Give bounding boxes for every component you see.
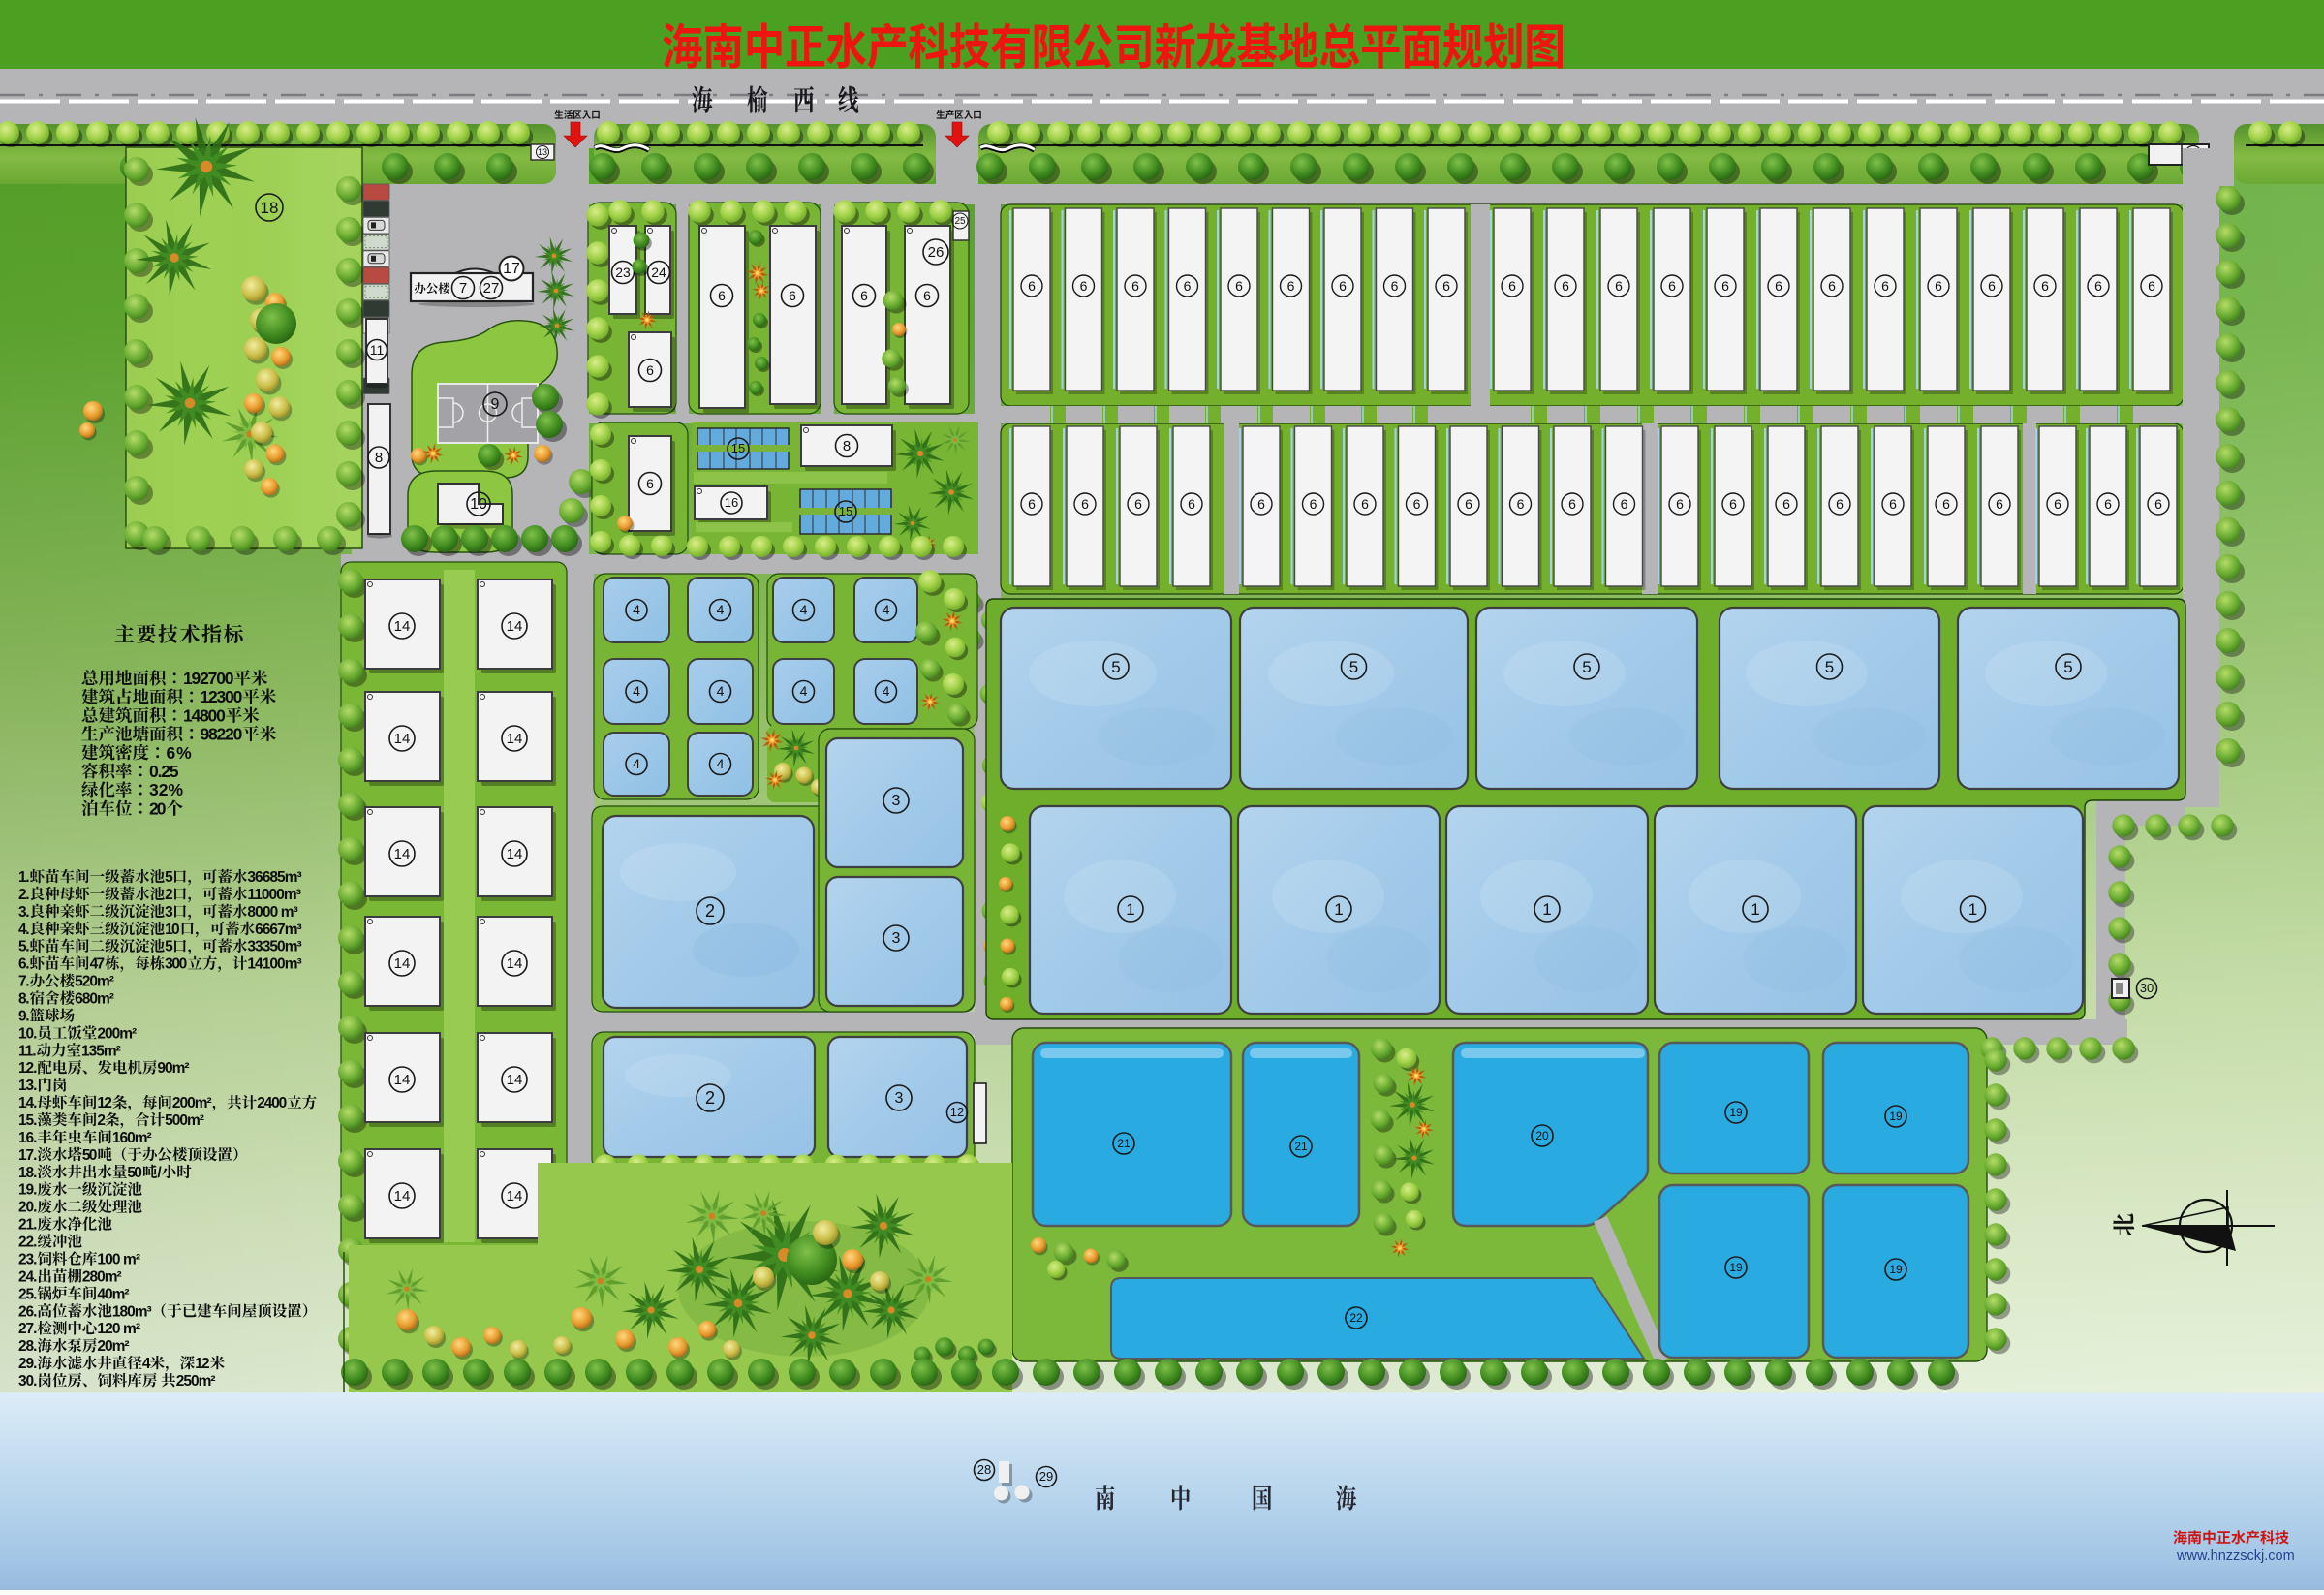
svg-text:15.: 15. <box>18 1112 37 1129</box>
svg-text:6: 6 <box>1287 278 1295 294</box>
svg-text:3: 3 <box>892 930 901 947</box>
svg-text:4: 4 <box>883 602 890 617</box>
svg-text:14: 14 <box>507 731 523 747</box>
svg-text:21: 21 <box>1117 1137 1131 1150</box>
svg-text:36685m³: 36685m³ <box>247 869 301 886</box>
svg-text:6: 6 <box>1615 278 1623 294</box>
svg-text:23: 23 <box>615 265 631 280</box>
svg-text:4: 4 <box>800 602 808 617</box>
svg-text:6: 6 <box>1517 496 1525 512</box>
svg-text:6: 6 <box>1080 278 1088 294</box>
svg-text:6: 6 <box>2041 278 2049 294</box>
svg-text:300: 300 <box>165 956 187 973</box>
svg-text:25: 25 <box>954 216 966 227</box>
svg-text:6: 6 <box>1134 496 1142 512</box>
svg-text:6: 6 <box>1131 278 1139 294</box>
svg-text:6: 6 <box>1881 278 1889 294</box>
svg-text:14: 14 <box>394 1072 411 1088</box>
svg-text:18: 18 <box>261 199 279 217</box>
svg-text:200m²: 200m² <box>97 1025 137 1042</box>
svg-text:40m²: 40m² <box>97 1286 129 1302</box>
svg-text:90m²: 90m² <box>157 1060 189 1077</box>
svg-text:2.: 2. <box>18 887 30 903</box>
svg-text:6: 6 <box>2148 278 2155 294</box>
svg-text:8000 m³: 8000 m³ <box>247 904 297 921</box>
svg-text:5.: 5. <box>18 939 30 955</box>
svg-text:3: 3 <box>895 1090 904 1107</box>
svg-text:4: 4 <box>800 683 808 699</box>
svg-text:192700: 192700 <box>183 669 234 688</box>
svg-text:6: 6 <box>1568 496 1576 512</box>
svg-text:20m²: 20m² <box>97 1338 129 1355</box>
svg-text:3: 3 <box>892 793 901 809</box>
svg-text:180m³: 180m³ <box>112 1303 152 1320</box>
svg-text:19.: 19. <box>18 1182 37 1199</box>
svg-text:5: 5 <box>165 869 173 886</box>
svg-text:6: 6 <box>1996 496 2003 512</box>
svg-text:50: 50 <box>127 1165 142 1181</box>
svg-text:10.: 10. <box>18 1025 37 1042</box>
svg-text:4: 4 <box>717 602 725 617</box>
svg-text:14800: 14800 <box>183 705 226 725</box>
svg-text:15: 15 <box>731 441 745 455</box>
svg-text:14: 14 <box>394 618 411 635</box>
svg-text:11: 11 <box>370 342 385 358</box>
svg-text:6: 6 <box>1391 278 1399 294</box>
svg-text:10: 10 <box>470 496 487 513</box>
svg-text:4: 4 <box>633 756 640 771</box>
svg-text:4: 4 <box>717 756 725 771</box>
svg-text:14: 14 <box>507 846 523 862</box>
svg-text:500m²: 500m² <box>165 1112 204 1129</box>
svg-text:13: 13 <box>538 147 547 157</box>
svg-text:6: 6 <box>1413 496 1421 512</box>
svg-text:19: 19 <box>1729 1106 1743 1119</box>
svg-text:14: 14 <box>507 1072 523 1088</box>
svg-text:18.: 18. <box>18 1165 37 1181</box>
svg-text:6: 6 <box>1081 496 1089 512</box>
svg-text:200m²: 200m² <box>172 1095 212 1111</box>
svg-text:6: 6 <box>1339 278 1347 294</box>
svg-text:6: 6 <box>1721 278 1729 294</box>
svg-text:6: 6 <box>2094 278 2102 294</box>
svg-text:7.: 7. <box>18 974 30 990</box>
svg-text:/: / <box>157 1165 162 1181</box>
svg-text:8: 8 <box>843 438 851 454</box>
svg-text:6.: 6. <box>18 956 30 973</box>
svg-text:6: 6 <box>2054 496 2061 512</box>
svg-text:6: 6 <box>1729 496 1737 512</box>
svg-text:6: 6 <box>1465 496 1472 512</box>
svg-text:1: 1 <box>1126 900 1134 919</box>
svg-text:4: 4 <box>717 683 725 699</box>
svg-text:2: 2 <box>705 1088 715 1108</box>
svg-text:98220: 98220 <box>201 725 243 744</box>
svg-text:14: 14 <box>507 1188 523 1204</box>
svg-text:6: 6 <box>1935 278 1942 294</box>
svg-text:20.: 20. <box>18 1200 37 1216</box>
svg-text:22: 22 <box>1349 1311 1363 1325</box>
svg-text:6: 6 <box>1621 496 1628 512</box>
svg-text:5: 5 <box>1825 658 1834 676</box>
svg-text:6: 6 <box>1184 278 1192 294</box>
svg-text:27: 27 <box>483 280 500 297</box>
svg-text:2: 2 <box>165 887 173 903</box>
svg-text:14100m³: 14100m³ <box>247 956 301 973</box>
svg-text:6: 6 <box>1310 496 1317 512</box>
svg-text:6: 6 <box>1942 496 1950 512</box>
svg-text:28.: 28. <box>18 1338 37 1355</box>
svg-text:520m²: 520m² <box>75 974 114 990</box>
svg-text:5: 5 <box>165 939 173 955</box>
svg-text:32%: 32% <box>149 780 183 799</box>
svg-text:14.: 14. <box>18 1095 37 1111</box>
svg-text:12300: 12300 <box>201 687 243 706</box>
svg-text:6: 6 <box>1782 496 1790 512</box>
svg-text:6: 6 <box>1889 496 1897 512</box>
svg-text:1: 1 <box>1751 900 1759 919</box>
svg-text:6: 6 <box>860 288 868 303</box>
svg-text:20: 20 <box>1535 1129 1549 1142</box>
svg-text:6: 6 <box>1188 496 1195 512</box>
svg-text:24: 24 <box>651 265 666 280</box>
svg-text:8: 8 <box>375 450 383 466</box>
svg-text:14: 14 <box>394 1188 411 1204</box>
svg-text:21.: 21. <box>18 1217 37 1234</box>
svg-text:www.hnzzsckj.com: www.hnzzsckj.com <box>2176 1548 2295 1564</box>
svg-text:6: 6 <box>646 362 654 378</box>
svg-text:680m²: 680m² <box>75 991 114 1008</box>
svg-text:5: 5 <box>1349 658 1358 676</box>
svg-text:12.: 12. <box>18 1060 37 1077</box>
svg-text:12: 12 <box>97 1095 112 1111</box>
svg-text:26.: 26. <box>18 1303 37 1320</box>
svg-text:4: 4 <box>142 1356 151 1372</box>
svg-text:21: 21 <box>1294 1140 1308 1153</box>
svg-text:5: 5 <box>2063 658 2072 676</box>
svg-text:7: 7 <box>459 280 467 297</box>
svg-text:20: 20 <box>149 798 167 818</box>
svg-text:17.: 17. <box>18 1147 37 1164</box>
svg-text:12: 12 <box>195 1356 210 1372</box>
svg-text:6: 6 <box>2154 496 2162 512</box>
svg-text:19: 19 <box>1889 1263 1903 1276</box>
svg-text:17: 17 <box>503 261 520 277</box>
svg-text:47: 47 <box>90 956 106 973</box>
svg-text:30: 30 <box>2140 981 2154 995</box>
svg-text:120 m²: 120 m² <box>97 1321 140 1337</box>
svg-text:24.: 24. <box>18 1268 37 1285</box>
svg-text:280m²: 280m² <box>82 1268 122 1285</box>
svg-text:13.: 13. <box>18 1078 37 1094</box>
svg-text:10: 10 <box>165 922 180 938</box>
svg-text:6: 6 <box>1775 278 1782 294</box>
svg-text:1.: 1. <box>18 869 30 886</box>
svg-text:4.: 4. <box>18 922 30 938</box>
svg-text:33350m³: 33350m³ <box>247 939 301 955</box>
svg-text:6: 6 <box>1562 278 1569 294</box>
svg-text:6: 6 <box>789 288 796 303</box>
svg-text:6: 6 <box>1508 278 1516 294</box>
svg-text:19: 19 <box>1889 1110 1903 1123</box>
svg-text:11.: 11. <box>18 1043 37 1059</box>
svg-text:2: 2 <box>705 901 715 921</box>
svg-text:6: 6 <box>1836 496 1844 512</box>
svg-text:6: 6 <box>1235 278 1243 294</box>
svg-text:6%: 6% <box>167 743 193 763</box>
svg-text:16: 16 <box>725 495 738 510</box>
svg-text:16.: 16. <box>18 1130 37 1146</box>
svg-text:6: 6 <box>1442 278 1450 294</box>
svg-text:3: 3 <box>165 904 173 921</box>
svg-text:6: 6 <box>718 288 726 303</box>
svg-text:27.: 27. <box>18 1321 37 1337</box>
svg-text:6: 6 <box>1988 278 1996 294</box>
svg-text:29: 29 <box>1039 1469 1053 1484</box>
svg-text:28: 28 <box>977 1462 991 1477</box>
svg-text:6: 6 <box>923 288 931 303</box>
svg-text:250m²: 250m² <box>176 1373 216 1390</box>
svg-text:6: 6 <box>1668 278 1676 294</box>
svg-text:14: 14 <box>394 955 411 972</box>
svg-text:6667m³: 6667m³ <box>255 922 302 938</box>
svg-text:23.: 23. <box>18 1252 37 1268</box>
svg-text:5: 5 <box>1111 658 1120 676</box>
svg-text:11000m³: 11000m³ <box>247 887 301 903</box>
svg-text:135m²: 135m² <box>81 1043 121 1059</box>
svg-text:19: 19 <box>1729 1261 1743 1274</box>
svg-text:1: 1 <box>1334 900 1343 919</box>
svg-text:1: 1 <box>1968 900 1977 919</box>
svg-text:6: 6 <box>1028 278 1036 294</box>
svg-text:15: 15 <box>839 504 852 518</box>
svg-text:100 m²: 100 m² <box>97 1252 140 1268</box>
svg-text:6: 6 <box>1676 496 1684 512</box>
svg-text:12: 12 <box>950 1105 964 1119</box>
svg-text:1: 1 <box>1542 900 1551 919</box>
svg-text:14: 14 <box>507 618 523 635</box>
svg-text:2: 2 <box>97 1112 106 1129</box>
svg-text:25.: 25. <box>18 1286 37 1302</box>
svg-text:14: 14 <box>507 955 523 972</box>
svg-text:9.: 9. <box>18 1008 30 1024</box>
svg-text:14: 14 <box>394 731 411 747</box>
svg-text:4: 4 <box>633 602 640 617</box>
svg-text:3.: 3. <box>18 904 30 921</box>
svg-text:6: 6 <box>2104 496 2112 512</box>
svg-text:0.25: 0.25 <box>149 762 179 781</box>
svg-text:9: 9 <box>491 396 500 413</box>
svg-text:29.: 29. <box>18 1356 37 1372</box>
svg-text:4: 4 <box>883 683 890 699</box>
svg-text:26: 26 <box>928 244 945 261</box>
svg-text:50: 50 <box>82 1147 98 1164</box>
svg-text:8.: 8. <box>18 991 30 1008</box>
svg-text:22.: 22. <box>18 1235 37 1251</box>
svg-text:6: 6 <box>1828 278 1836 294</box>
svg-text:160m²: 160m² <box>112 1130 152 1146</box>
svg-text:6: 6 <box>1257 496 1265 512</box>
svg-text:6: 6 <box>1028 496 1036 512</box>
svg-text:30.: 30. <box>18 1373 37 1390</box>
svg-text:5: 5 <box>1582 658 1591 676</box>
svg-text:14: 14 <box>394 846 411 862</box>
svg-text:2400: 2400 <box>257 1095 287 1111</box>
svg-text:6: 6 <box>646 476 654 491</box>
svg-text:4: 4 <box>633 683 640 699</box>
svg-text:6: 6 <box>1361 496 1369 512</box>
